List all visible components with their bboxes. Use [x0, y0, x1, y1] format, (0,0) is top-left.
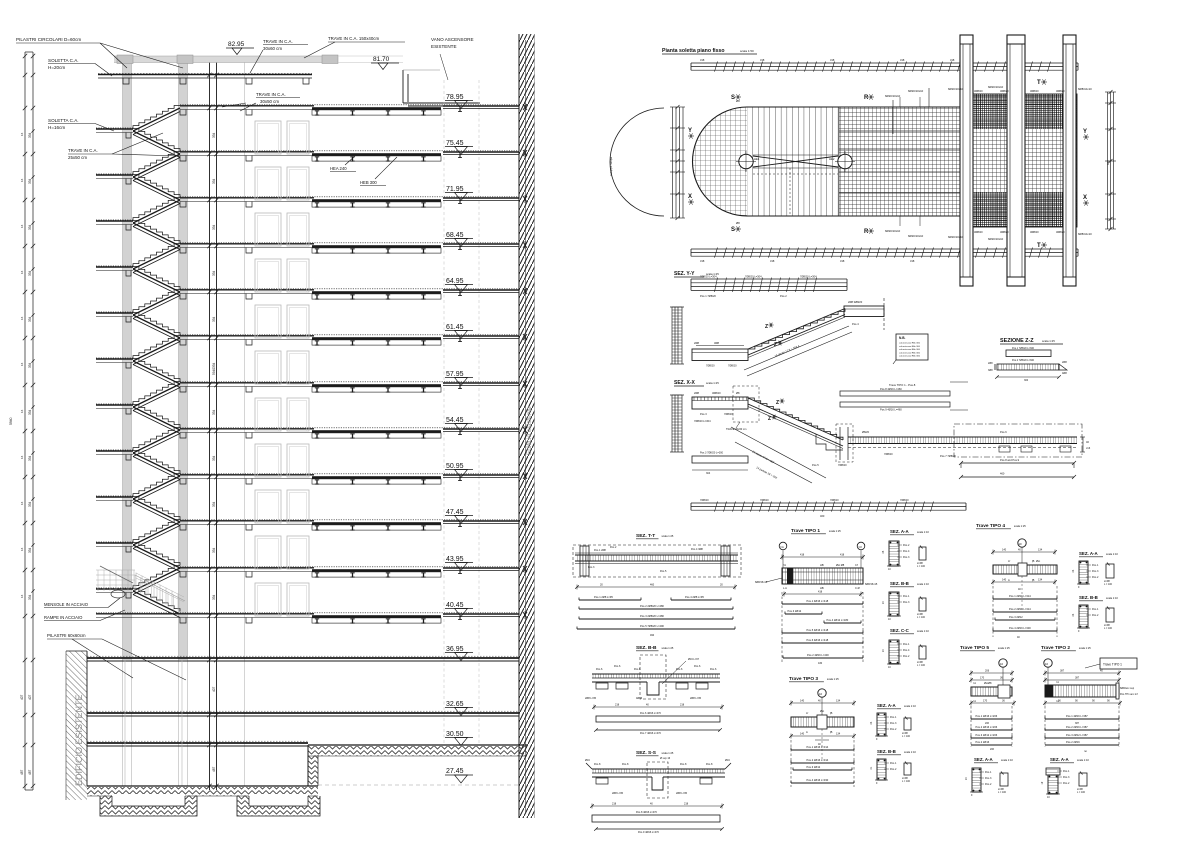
svg-text:|B: |B: [830, 730, 833, 734]
svg-text:334: 334: [28, 178, 32, 184]
svg-text:Pos.3 2Ø12: Pos.3 2Ø12: [807, 765, 821, 769]
svg-text:Pos.9 4Ø16 L=460: Pos.9 4Ø16 L=460: [880, 408, 902, 412]
svg-text:206: 206: [990, 748, 995, 751]
svg-text:64.95: 64.95: [446, 278, 464, 285]
svg-text:Pos.6: Pos.6: [1000, 430, 1007, 434]
svg-text:Pos.3: Pos.3: [903, 601, 910, 604]
svg-text:218: 218: [684, 803, 689, 806]
svg-text:scala 1:10: scala 1:10: [1077, 758, 1089, 762]
svg-text:334: 334: [28, 224, 32, 230]
svg-text:TRAVE IN C.A.: TRAVE IN C.A.: [263, 39, 293, 44]
svg-text:Pos.2 4Ø16 L=430: Pos.2 4Ø16 L=430: [807, 653, 829, 657]
svg-text:Pos.9 4Ø16 L=470: Pos.9 4Ø16 L=470: [638, 831, 660, 834]
svg-text:Pos.5 4Ø16 L=418: Pos.5 4Ø16 L=418: [807, 628, 829, 632]
svg-text:Pos.8 4Ø16 L=470: Pos.8 4Ø16 L=470: [636, 811, 658, 814]
svg-text:Pos.2: Pos.2: [610, 546, 617, 549]
svg-text:H=20cm: H=20cm: [48, 65, 65, 70]
svg-text:Pos.4 2Ø16 L=330: Pos.4 2Ø16 L=330: [807, 778, 829, 782]
svg-text:16: 16: [20, 224, 24, 228]
svg-text:2Ø8 L=95: 2Ø8 L=95: [676, 792, 688, 795]
svg-text:scala 1:10: scala 1:10: [1106, 596, 1118, 600]
svg-text:206: 206: [985, 722, 990, 725]
svg-text:RAMPE IN ACCIAIO: RAMPE IN ACCIAIO: [44, 615, 83, 620]
svg-text:Pos.3: Pos.3: [588, 566, 595, 569]
svg-text:Pos.3 2Ø12 L=387: Pos.3 2Ø12 L=387: [1066, 733, 1088, 737]
svg-text:C.Ø: C.Ø: [855, 586, 860, 590]
svg-text:SEZ. X-X: SEZ. X-X: [674, 380, 696, 386]
svg-text:scala 1:10: scala 1:10: [1001, 758, 1013, 762]
svg-text:N.B.: N.B.: [899, 336, 905, 340]
svg-text:SEZ. B-B: SEZ. B-B: [1079, 595, 1098, 600]
svg-text:|B: |B: [1032, 559, 1035, 563]
svg-text:Pos.2: Pos.2: [780, 294, 787, 298]
svg-text:PILASTRI CIRCOLARI D=60cm: PILASTRI CIRCOLARI D=60cm: [16, 37, 81, 42]
svg-text:334: 334: [28, 362, 32, 368]
svg-text:L.A: L.A: [783, 586, 787, 590]
svg-text:134: 134: [836, 733, 841, 736]
svg-text:Ø8: Ø8: [736, 99, 740, 103]
svg-text:I'A: I'A: [783, 563, 786, 567]
svg-text:7Ø8/20 L=304: 7Ø8/20 L=304: [800, 275, 817, 279]
svg-text:X: X: [688, 194, 692, 200]
svg-text:10: 10: [1000, 662, 1004, 666]
svg-text:134: 134: [1038, 549, 1043, 552]
svg-text:scala 1:10: scala 1:10: [917, 530, 929, 534]
svg-text:Pos.2 2Ø16: Pos.2 2Ø16: [1066, 740, 1080, 744]
svg-text:Pos.1: Pos.1: [903, 643, 910, 646]
svg-text:S: S: [731, 95, 735, 101]
svg-text:scala 1:25: scala 1:25: [827, 677, 839, 681]
svg-text:304: 304: [706, 472, 711, 475]
svg-text:Pos.1 2Ø8 L=95: Pos.1 2Ø8 L=95: [594, 595, 613, 599]
svg-text:Pos.6: Pos.6: [694, 665, 701, 668]
svg-text:16: 16: [20, 362, 24, 366]
svg-text:Pos.1 4Ø16 L=418: Pos.1 4Ø16 L=418: [807, 599, 829, 603]
svg-text:71.95: 71.95: [446, 186, 464, 193]
svg-text:6Ø8/15x15: 6Ø8/15x15: [865, 583, 878, 586]
svg-text:3Ø8/20: 3Ø8/20: [974, 230, 983, 234]
svg-text:Pos.4 2Ø8 L=95: Pos.4 2Ø8 L=95: [685, 595, 704, 599]
svg-text:calcestruzzo Rbk 300: calcestruzzo Rbk 300: [899, 351, 921, 354]
svg-text:Pos.5: Pos.5: [660, 570, 667, 573]
svg-text:Z: Z: [774, 342, 777, 348]
svg-text:SEZ. A-A: SEZ. A-A: [974, 757, 993, 762]
svg-text:334: 334: [28, 455, 32, 461]
svg-text:Pos.3: Pos.3: [903, 556, 910, 559]
svg-text:6Ø20/10x10: 6Ø20/10x10: [908, 89, 924, 93]
svg-text:40.45: 40.45: [446, 602, 464, 609]
svg-text:Pos.3: Pos.3: [890, 722, 897, 725]
svg-text:5940: 5940: [9, 417, 13, 425]
svg-text:scala 1:25: scala 1:25: [829, 529, 841, 533]
svg-text:scala 1:25: scala 1:25: [706, 381, 719, 385]
svg-text:SEZ. A-A: SEZ. A-A: [1079, 551, 1098, 556]
svg-text:16: 16: [20, 409, 24, 413]
svg-text:318: 318: [830, 58, 835, 62]
svg-text:Ø8/20: Ø8/20: [862, 430, 870, 434]
svg-text:140: 140: [1002, 549, 1007, 552]
svg-text:scala 1:25: scala 1:25: [662, 646, 674, 650]
svg-text:Z: Z: [776, 400, 779, 406]
svg-text:SEZ. A-A: SEZ. A-A: [890, 529, 909, 534]
svg-text:Pos.2: Pos.2: [985, 783, 992, 786]
svg-text:calcestruzzo Rbk 300: calcestruzzo Rbk 300: [899, 348, 921, 351]
svg-text:7Ø8/20 L=304: 7Ø8/20 L=304: [700, 275, 717, 279]
svg-text:|B: |B: [830, 711, 833, 715]
svg-text:A: A: [1008, 578, 1010, 582]
svg-text:Trave TIPO 5: Trave TIPO 5: [960, 645, 989, 651]
svg-text:6Ø8/15x15: 6Ø8/15x15: [755, 581, 768, 584]
svg-text:SEZ. A-A: SEZ. A-A: [1050, 757, 1069, 762]
svg-text:Pos.5: Pos.5: [812, 463, 819, 467]
svg-text:HB: HB: [820, 563, 824, 567]
svg-text:T: T: [1037, 243, 1041, 249]
svg-text:6Ø20/10x10: 6Ø20/10x10: [948, 87, 964, 91]
svg-text:Pos.6: Pos.6: [614, 665, 621, 668]
svg-text:Pos.1: Pos.1: [985, 771, 992, 774]
svg-text:SEZ. B-B: SEZ. B-B: [890, 581, 909, 586]
svg-text:Ø8: Ø8: [736, 391, 740, 395]
svg-text:134: 134: [836, 700, 841, 703]
svg-text:16: 16: [20, 316, 24, 320]
svg-text:Edificio esistente: Edificio esistente: [526, 406, 533, 455]
svg-text:Pos.6 4Ø16 L=470: Pos.6 4Ø16 L=470: [640, 712, 662, 715]
svg-text:Pos.4: Pos.4: [903, 649, 910, 652]
svg-text:Pos.4 2Ø16 L=330: Pos.4 2Ø16 L=330: [1009, 626, 1031, 630]
svg-text:334: 334: [212, 270, 216, 276]
svg-text:Pos.3 2Ø12 L=206: Pos.3 2Ø12 L=206: [976, 733, 998, 737]
svg-text:460: 460: [820, 514, 825, 518]
svg-text:Pos.1 7Ø8/20: Pos.1 7Ø8/20: [700, 294, 716, 298]
svg-text:318: 318: [910, 259, 915, 263]
svg-text:I A: I A: [1056, 680, 1059, 684]
svg-text:Pos.2: Pos.2: [1092, 576, 1099, 579]
svg-text:Pos.TP1 anc inf: Pos.TP1 anc inf: [1120, 693, 1138, 696]
svg-text:R: R: [864, 229, 869, 235]
svg-text:7Ø8/20: 7Ø8/20: [760, 498, 769, 502]
svg-text:H=16cm: H=16cm: [48, 125, 65, 130]
svg-text:Pos.1: Pos.1: [890, 762, 897, 765]
svg-text:407: 407: [28, 694, 32, 700]
svg-text:Trave TIPO 1 - Pos.8: Trave TIPO 1 - Pos.8: [889, 383, 916, 387]
svg-text:16: 16: [20, 547, 24, 551]
svg-text:622: 622: [1106, 160, 1110, 165]
svg-text:3Ø8/20: 3Ø8/20: [1030, 89, 1039, 93]
svg-text:6Ø20/10x10: 6Ø20/10x10: [885, 94, 901, 98]
svg-text:218: 218: [612, 803, 617, 806]
svg-text:Y: Y: [688, 128, 692, 134]
svg-text:334: 334: [212, 455, 216, 461]
svg-text:Ø16 L=97: Ø16 L=97: [688, 658, 700, 661]
svg-text:7Ø8/20: 7Ø8/20: [728, 364, 737, 368]
svg-text:SEZ. B-B: SEZ. B-B: [636, 645, 657, 651]
svg-text:Pos.8: Pos.8: [622, 763, 629, 766]
svg-text:61.45: 61.45: [446, 324, 464, 331]
svg-text:R: R: [864, 95, 869, 101]
svg-text:3Ø8: 3Ø8: [714, 341, 719, 345]
svg-text:Trave TIPO 4: Trave TIPO 4: [976, 523, 1005, 529]
svg-text:36.95: 36.95: [446, 646, 464, 653]
svg-text:334: 334: [28, 594, 32, 600]
svg-text:54.45: 54.45: [446, 417, 464, 424]
svg-text:6Ø20/10x10: 6Ø20/10x10: [885, 229, 901, 233]
svg-text:Pos.3: Pos.3: [1063, 776, 1070, 779]
svg-text:L = 100: L = 100: [1104, 627, 1113, 630]
svg-text:334: 334: [28, 132, 32, 138]
svg-text:SEZ. Y-Y: SEZ. Y-Y: [674, 271, 695, 277]
svg-text:30x60 cm: 30x60 cm: [263, 46, 282, 51]
svg-text:Pos.3 2Ø12: Pos.3 2Ø12: [1009, 615, 1023, 619]
svg-text:Pos.1 2Ø16 L=314: Pos.1 2Ø16 L=314: [1009, 594, 1031, 598]
svg-text:|B: |B: [1032, 578, 1035, 582]
svg-text:218: 218: [680, 704, 685, 707]
svg-text:487: 487: [212, 766, 216, 772]
svg-text:Pos.1: Pos.1: [1092, 564, 1099, 567]
svg-text:418: 418: [818, 591, 823, 594]
svg-text:Pos.1 2Ø8: Pos.1 2Ø8: [594, 549, 606, 552]
svg-text:300: 300: [1024, 379, 1029, 382]
svg-text:81.70: 81.70: [373, 56, 390, 63]
svg-text:10: 10: [1019, 542, 1023, 546]
svg-text:L = 100: L = 100: [917, 616, 926, 619]
svg-text:Pos.4: Pos.4: [852, 322, 859, 326]
svg-text:27.45: 27.45: [446, 768, 464, 775]
svg-text:Pos.8: Pos.8: [594, 763, 601, 766]
svg-text:T: T: [1037, 80, 1041, 86]
svg-text:3Ø8: 3Ø8: [988, 369, 993, 372]
svg-text:3Ø8/20: 3Ø8/20: [712, 391, 721, 395]
svg-text:318: 318: [900, 58, 905, 62]
svg-text:Pos.2 7Ø8/20 L=300: Pos.2 7Ø8/20 L=300: [1012, 359, 1035, 362]
svg-text:3Ø8/20: 3Ø8/20: [1000, 89, 1009, 93]
svg-text:334: 334: [28, 547, 32, 553]
svg-text:318: 318: [950, 58, 955, 62]
svg-text:Pos.6 4Ø16 L=418: Pos.6 4Ø16 L=418: [807, 638, 829, 642]
svg-text:140: 140: [800, 700, 805, 703]
svg-text:I/A: I/A: [781, 545, 784, 549]
svg-text:scala 1:50: scala 1:50: [740, 49, 754, 53]
svg-text:PILASTRI 60x60cm: PILASTRI 60x60cm: [47, 633, 86, 638]
svg-text:Pos.2 2Ø8/20 L=480: Pos.2 2Ø8/20 L=480: [640, 604, 664, 608]
svg-text:Pos.7 4Ø16 L=470: Pos.7 4Ø16 L=470: [640, 732, 662, 735]
svg-text:L = 100: L = 100: [917, 565, 926, 568]
svg-text:7Ø8/20: 7Ø8/20: [884, 452, 893, 456]
svg-text:407: 407: [212, 686, 216, 692]
svg-text:318: 318: [700, 58, 705, 62]
svg-text:318: 318: [840, 259, 845, 263]
svg-text:scala 1:10: scala 1:10: [1106, 552, 1118, 556]
svg-text:calcestruzzo Rbk 300: calcestruzzo Rbk 300: [899, 345, 921, 348]
svg-text:5940: 5940: [212, 368, 216, 375]
svg-text:Pos.2: Pos.2: [1063, 782, 1070, 785]
svg-text:scala 1:25: scala 1:25: [1042, 339, 1055, 343]
svg-text:2Ø8 L=95: 2Ø8 L=95: [690, 697, 702, 700]
svg-text:Ø16: Ø16: [585, 759, 590, 762]
svg-text:Pos.3: Pos.3: [985, 777, 992, 780]
svg-text:Pos.6: Pos.6: [710, 668, 717, 671]
svg-text:Pos.1: Pos.1: [890, 716, 897, 719]
svg-text:Pos.8: Pos.8: [680, 763, 687, 766]
svg-text:Z: Z: [765, 324, 768, 330]
svg-text:I A: I A: [973, 681, 976, 685]
svg-text:Pos.1 4Ø16 L=387: Pos.1 4Ø16 L=387: [1066, 714, 1088, 718]
svg-text:scala 1:25: scala 1:25: [1014, 524, 1026, 528]
svg-text:I A: I A: [973, 699, 976, 703]
svg-text:7Ø8/20: 7Ø8/20: [900, 498, 909, 502]
svg-text:3Ø8/20: 3Ø8/20: [1056, 230, 1065, 234]
svg-text:Pos.3 7Ø8/20 L=300: Pos.3 7Ø8/20 L=300: [700, 452, 724, 455]
svg-text:2Ø8: 2Ø8: [988, 362, 993, 365]
svg-text:HE2: HE2: [829, 157, 835, 161]
svg-text:318: 318: [760, 58, 765, 62]
svg-text:Y: Y: [1083, 129, 1087, 135]
svg-text:Pos.2: Pos.2: [903, 544, 910, 547]
svg-text:Pos.8 and Pos.9: Pos.8 and Pos.9: [1000, 458, 1020, 462]
svg-text:SOLETTA C.A.: SOLETTA C.A.: [48, 118, 79, 123]
svg-text:Pos.4 3Ø8: Pos.4 3Ø8: [691, 548, 703, 551]
svg-text:25x50 cm: 25x50 cm: [68, 155, 87, 160]
svg-text:A: A: [806, 730, 808, 734]
svg-text:Ø8: Ø8: [736, 221, 740, 225]
svg-text:Pos.6: Pos.6: [596, 668, 603, 671]
svg-text:Øst: Øst: [1036, 559, 1040, 563]
svg-text:7Ø8/20 L=304: 7Ø8/20 L=304: [694, 419, 711, 423]
svg-text:10: 10: [1045, 662, 1049, 666]
svg-text:4Ø8: 4Ø8: [1062, 372, 1067, 375]
svg-text:Pos.4 2Ø12 L=180: Pos.4 2Ø12 L=180: [827, 618, 849, 622]
svg-text:430: 430: [818, 662, 823, 665]
svg-text:TRAVE IN C.A.: TRAVE IN C.A.: [68, 148, 98, 153]
svg-text:Trave TIPO 3: Trave TIPO 3: [789, 676, 818, 682]
svg-text:Pianta soletta piano fisso: Pianta soletta piano fisso: [662, 48, 725, 54]
svg-text:scala 1:10: scala 1:10: [917, 629, 929, 633]
svg-text:50.95: 50.95: [446, 463, 464, 470]
svg-text:SEZ. B-B: SEZ. B-B: [877, 749, 896, 754]
svg-text:scala 1:25: scala 1:25: [998, 646, 1010, 650]
svg-text:calcestruzzo Rbk 300: calcestruzzo Rbk 300: [899, 355, 921, 358]
svg-text:334: 334: [28, 501, 32, 507]
svg-text:32.65: 32.65: [446, 701, 464, 708]
svg-text:487: 487: [20, 769, 24, 775]
svg-text:EDIFICIO ESISTENTE: EDIFICIO ESISTENTE: [74, 694, 84, 786]
svg-text:SEZ. S-S: SEZ. S-S: [636, 750, 657, 756]
svg-text:2Ø8: 2Ø8: [694, 391, 699, 395]
svg-text:3Ø8/20: 3Ø8/20: [1056, 89, 1065, 93]
svg-text:VANO ASCENSORE: VANO ASCENSORE: [431, 37, 474, 42]
svg-text:7Ø8/20: 7Ø8/20: [700, 498, 709, 502]
svg-text:TRAVE IN C.A.: TRAVE IN C.A.: [256, 92, 286, 97]
svg-text:7Ø8/20: 7Ø8/20: [706, 364, 715, 368]
svg-text:334: 334: [28, 270, 32, 276]
svg-text:L = 100: L = 100: [998, 791, 1007, 794]
svg-text:16: 16: [20, 501, 24, 505]
svg-text:Pos.1 7Ø8/20 L=300: Pos.1 7Ø8/20 L=300: [1012, 347, 1035, 350]
svg-text:Pos.3: Pos.3: [700, 412, 707, 416]
svg-text:460: 460: [650, 584, 655, 587]
svg-text:L = 100: L = 100: [1104, 583, 1113, 586]
svg-text:6Ø8/10x10: 6Ø8/10x10: [1078, 87, 1092, 91]
svg-text:scala 1:25: scala 1:25: [662, 751, 674, 755]
svg-text:Øst: Øst: [820, 709, 824, 713]
svg-text:ØstØ8: ØstØ8: [984, 681, 992, 685]
svg-text:134: 134: [1038, 579, 1043, 582]
svg-text:3Ø8/20: 3Ø8/20: [974, 89, 983, 93]
svg-text:SOLETTA C.A.: SOLETTA C.A.: [48, 58, 79, 63]
svg-text:Pos.2 2Ø16: Pos.2 2Ø16: [976, 740, 990, 744]
svg-text:16: 16: [20, 594, 24, 598]
svg-text:334: 334: [212, 501, 216, 507]
svg-text:6Ø20/10x10: 6Ø20/10x10: [948, 235, 964, 239]
svg-text:HEA 240: HEA 240: [330, 166, 347, 171]
svg-text:Øst Ø8: Øst Ø8: [836, 563, 845, 567]
svg-text:Pos.1: Pos.1: [903, 595, 910, 598]
svg-text:SEZIONE Z-Z: SEZIONE Z-Z: [1000, 338, 1034, 344]
svg-text:Pos.2 2Ø16 L=206: Pos.2 2Ø16 L=206: [976, 725, 998, 729]
svg-text:Pos.1: Pos.1: [1063, 770, 1070, 773]
svg-text:334: 334: [28, 316, 32, 322]
svg-text:HEB 300: HEB 300: [360, 180, 377, 185]
svg-text:Pos.2: Pos.2: [1092, 614, 1099, 617]
svg-text:Pos.2 2Ø16 L=387: Pos.2 2Ø16 L=387: [1066, 725, 1088, 729]
svg-text:scala 1:10: scala 1:10: [904, 750, 916, 754]
svg-text:Pos.4: Pos.4: [903, 550, 910, 553]
svg-text:sviluppo rampa: sviluppo rampa: [609, 157, 613, 176]
svg-text:387: 387: [1075, 722, 1080, 725]
svg-text:6Ø8/anc sup: 6Ø8/anc sup: [1120, 687, 1135, 690]
svg-text:334: 334: [212, 224, 216, 230]
svg-text:scala 1:25: scala 1:25: [1079, 646, 1091, 650]
svg-text:X: X: [1083, 195, 1087, 201]
svg-text:SEZ. T-T: SEZ. T-T: [636, 533, 655, 539]
svg-text:L = 100: L = 100: [902, 735, 911, 738]
svg-text:75.45: 75.45: [446, 140, 464, 147]
svg-text:2Ø8 L=95: 2Ø8 L=95: [585, 697, 597, 700]
svg-text:6Ø20/10x10: 6Ø20/10x10: [988, 85, 1004, 89]
svg-text:334: 334: [212, 132, 216, 138]
svg-text:scala 1:10: scala 1:10: [917, 582, 929, 586]
svg-text:318: 318: [770, 259, 775, 263]
svg-text:Pos.2 2Ø16 L=314: Pos.2 2Ø16 L=314: [1009, 607, 1031, 611]
svg-text:Z: Z: [768, 416, 771, 422]
svg-text:490: 490: [650, 634, 655, 637]
svg-text:7Ø8/20: 7Ø8/20: [830, 498, 839, 502]
svg-text:Trave TIPO 1: Trave TIPO 1: [1103, 663, 1122, 667]
svg-text:460: 460: [1000, 472, 1005, 476]
svg-text:334: 334: [212, 547, 216, 553]
svg-text:2Ø8 L=95: 2Ø8 L=95: [612, 792, 624, 795]
svg-text:2Ø8: 2Ø8: [1062, 361, 1067, 364]
svg-text:6Ø20/10x10: 6Ø20/10x10: [988, 237, 1004, 241]
svg-text:30x50 cm: 30x50 cm: [260, 99, 279, 104]
svg-text:L = 100: L = 100: [902, 780, 911, 783]
svg-text:487: 487: [28, 769, 32, 775]
svg-text:140: 140: [800, 733, 805, 736]
svg-text:Trave TIPO 2: Trave TIPO 2: [1041, 645, 1070, 651]
svg-text:Pos.8 4Ø16 L=460: Pos.8 4Ø16 L=460: [880, 387, 902, 391]
svg-text:2Ø8 3Ø8/20: 2Ø8 3Ø8/20: [848, 300, 863, 304]
svg-text:C/I: C/I: [859, 545, 863, 549]
svg-text:16: 16: [20, 178, 24, 182]
svg-text:scala 1:10: scala 1:10: [904, 704, 916, 708]
svg-text:407: 407: [20, 694, 24, 700]
svg-text:7Ø8/20: 7Ø8/20: [724, 412, 733, 416]
svg-text:418: 418: [840, 554, 845, 557]
svg-text:334: 334: [212, 178, 216, 184]
svg-text:HB: HB: [820, 586, 824, 590]
svg-text:Pos.1: Pos.1: [1092, 608, 1099, 611]
svg-text:Ø16: Ø16: [725, 759, 730, 762]
svg-text:SEZ. A-A: SEZ. A-A: [877, 703, 896, 708]
